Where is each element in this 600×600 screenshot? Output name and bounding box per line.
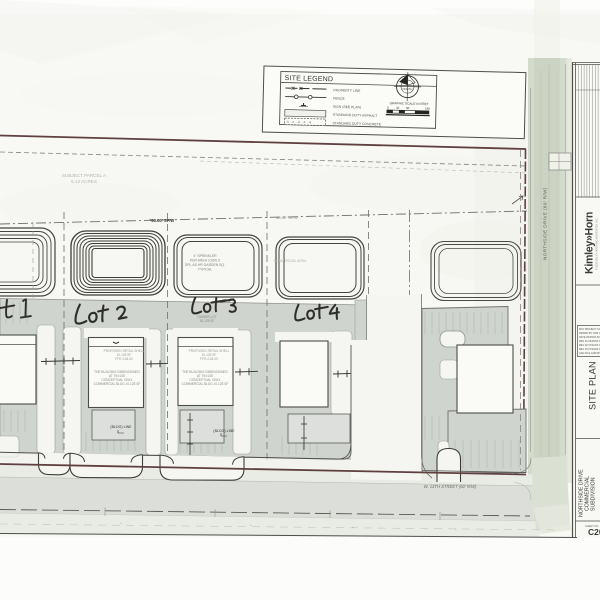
svg-text:90: 90 [406,106,410,110]
svg-text:DRAWN BY JDM CHK TRS: DRAWN BY JDM CHK TRS [579,332,600,335]
svg-text:5.12 ACRES: 5.12 ACRES [71,179,97,184]
svg-text:+: + [352,525,354,529]
svg-text:4" SPRINKLER: 4" SPRINKLER [193,254,217,258]
svg-text:+: + [455,527,457,531]
svg-text:SPL.AS.HR GARDEN SQ.: SPL.AS.HR GARDEN SQ. [185,263,225,267]
svg-text:TYPICAL: TYPICAL [198,268,212,272]
svg-text:FFE=104.00: FFE=104.00 [200,357,218,361]
svg-text:COMMERCIAL BLDG 10,125 SF: COMMERCIAL BLDG 10,125 SF [182,382,229,386]
svg-text:80.00' SP.W: 80.00' SP.W [276,215,298,220]
svg-text:+: + [250,523,252,527]
svg-text:*80.00' SP.W: *80.00' SP.W [150,218,174,223]
svg-text:4·≠·4·≠·4: 4·≠·4·≠·4 [287,120,313,125]
svg-text:SUBDIVISION: SUBDIVISION [591,477,597,511]
svg-text:Kimley»Horn: Kimley»Horn [583,212,595,274]
svg-text:REV 03 07/20/03 CITY: REV 03 07/20/03 CITY [579,348,600,351]
svg-text:MAY PROJECT 013156001: MAY PROJECT 013156001 [579,328,600,331]
svg-text:NORTH: NORTH [402,87,412,91]
svg-text:REV 01 06/15/03 CITY: REV 01 06/15/03 CITY [579,340,600,343]
svg-text:SUBJECT PARCEL A: SUBJECT PARCEL A [62,173,107,178]
svg-text:COMMERCIAL BLDG 10,125 SF: COMMERCIAL BLDG 10,125 SF [94,382,141,386]
svg-text:+: + [120,521,122,525]
svg-text:COMMERCIAL AREA: COMMERCIAL AREA [274,259,308,263]
svg-text:SIGN (SEE PLAN): SIGN (SEE PLAN) [333,105,361,110]
svg-text:SITE PLAN: SITE PLAN [588,361,598,410]
svg-text:DATE 05/30/03 SC 1"=40': DATE 05/30/03 SC 1"=40' [579,336,600,339]
svg-text:FFE=104.50: FFE=104.50 [115,357,133,361]
svg-text:(BLDG) LINE: (BLDG) LINE [213,429,235,433]
svg-text:C20: C20 [588,527,600,537]
svg-text:180: 180 [425,107,430,111]
svg-text:REV 02 07/02/03 CITY: REV 02 07/02/03 CITY [579,344,600,347]
svg-text:SITE LEGEND: SITE LEGEND [285,75,334,83]
svg-text:30,125 SF: 30,125 SF [200,319,215,323]
svg-text:PROPERTY LINE: PROPERTY LINE [333,88,361,93]
svg-text:W. 13TH STREET (60' R/W): W. 13TH STREET (60' R/W) [424,484,477,489]
svg-text:PER AREA 0.35/0.5: PER AREA 0.35/0.5 [190,259,220,263]
svg-text:45: 45 [396,106,400,110]
svg-text:NORTHSIDE DRIVE (60' R/W): NORTHSIDE DRIVE (60' R/W) [543,187,548,260]
svg-text:(BLDG) LINE: (BLDG) LINE [110,425,132,429]
svg-text:© 2003 KIMLEY-HORN AND ASSOCIA: © 2003 KIMLEY-HORN AND ASSOCIATES, INC. [595,218,598,270]
svg-text:CAD FILE 0131SP01: CAD FILE 0131SP01 [579,352,600,355]
svg-text:FENCE: FENCE [333,97,345,101]
